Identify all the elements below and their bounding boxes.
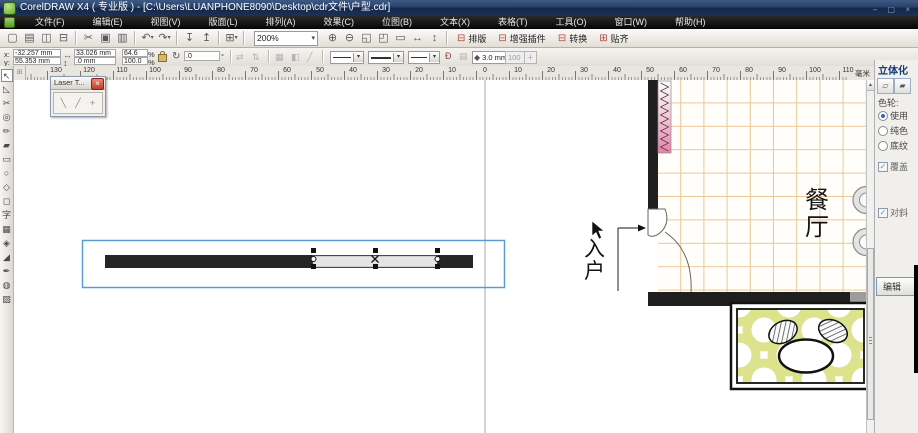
ruler-label: 40	[349, 67, 357, 74]
spinner-value: 100	[506, 53, 523, 62]
toolbox: ↖ ◺ ✂ ◎ ✏ ▰ ▭ ○ ◇ ◻ 字 ▦	[0, 66, 14, 433]
scale-v-field[interactable]	[122, 57, 148, 65]
outline-list-icon[interactable]: ▤	[459, 51, 468, 62]
zoom-selected-icon[interactable]: ◱	[359, 31, 374, 46]
scrollbar-grip	[869, 337, 872, 344]
radio-icon	[878, 111, 888, 121]
export-icon[interactable]: ↥	[199, 31, 214, 46]
coreldraw-app-icon	[3, 2, 16, 15]
combine-icon[interactable]: ▦	[275, 52, 284, 63]
import-icon[interactable]: ↧	[182, 31, 197, 46]
ruler-label: 50	[316, 67, 324, 74]
laser-window-titlebar[interactable]: Laser T... ×	[51, 77, 105, 90]
text-tool-icon[interactable]: 字	[1, 209, 13, 222]
dining-label: 餐厅	[805, 188, 832, 242]
plugin-button[interactable]: ⊟ 增强插件	[498, 31, 545, 46]
cut-icon[interactable]: ✂	[81, 31, 96, 46]
outline-pen-tool-icon[interactable]: ✒	[1, 265, 13, 278]
line-style-combo[interactable]: ▾	[368, 51, 404, 64]
menu-item[interactable]: 表格(T)	[484, 16, 542, 29]
scroll-up-icon[interactable]: ▲	[867, 80, 874, 91]
menu-item[interactable]: 文件(F)	[21, 16, 79, 29]
plugin-icon: ⊟	[457, 33, 465, 44]
object-height-field[interactable]	[74, 57, 116, 65]
plugin-button[interactable]: ⊞ 贴齐	[599, 31, 628, 46]
menu-item[interactable]: 工具(O)	[542, 16, 601, 29]
undo-icon[interactable]: ↶	[140, 31, 155, 46]
toolbar-icon[interactable]	[176, 31, 178, 45]
plus-icon: ＋	[524, 52, 537, 63]
toolbar-icon[interactable]	[134, 31, 136, 45]
start-arrowhead-combo[interactable]: ▾	[330, 51, 364, 64]
zoom-all-icon[interactable]: ◰	[376, 31, 391, 46]
chevron-down-icon: ▾	[393, 53, 403, 62]
copy-icon[interactable]: ▣	[98, 31, 113, 46]
ruler-label: 50	[646, 67, 654, 74]
coreldraw-window: CorelDRAW X4 ( 专业版 ) - [C:\Users\LUANPHO…	[0, 0, 918, 433]
menu-item[interactable]: 效果(C)	[310, 16, 369, 29]
zoom-width-icon[interactable]: ↔	[410, 31, 425, 46]
lock-ratio-icon[interactable]	[158, 54, 167, 62]
ellipse-tool-icon[interactable]: ○	[1, 167, 13, 180]
menu-item[interactable]: 位图(B)	[368, 16, 426, 29]
group-icon[interactable]: ◧	[291, 52, 300, 63]
ruler-label: 110	[842, 67, 853, 74]
laser-window-body: ╲╱+	[53, 92, 103, 114]
print-icon[interactable]: ⊟	[56, 31, 71, 46]
docker-radio[interactable]: 使用	[878, 109, 908, 122]
zoom-in-icon[interactable]: ⊕	[325, 31, 340, 46]
docker-title: 立体化	[878, 62, 908, 77]
color-wheel-label: 色轮:	[878, 96, 899, 109]
shape-tool-icon[interactable]: ◺	[1, 83, 13, 96]
eyedropper-tool-icon[interactable]: ◢	[1, 251, 13, 264]
open-icon[interactable]: ▤	[22, 31, 37, 46]
zoom-level-value: 200%	[257, 33, 279, 43]
wall-left-upper	[648, 80, 658, 210]
interactive-blend-tool-icon[interactable]: ◈	[1, 237, 13, 250]
convert-line-icon[interactable]: ╱	[307, 52, 312, 63]
table-ellipse	[779, 340, 833, 373]
zoom-tool-icon[interactable]: ◎	[1, 111, 13, 124]
window-title: CorelDRAW X4 ( 专业版 ) - [C:\Users\LUANPHO…	[20, 0, 390, 16]
docker-checkbox[interactable]: ✓ 覆盖	[878, 160, 908, 173]
rotation-angle-field[interactable]	[184, 51, 220, 61]
ruler-label: 100	[809, 67, 821, 74]
ruler-origin[interactable]: ⊞	[14, 66, 26, 80]
radio-icon	[878, 141, 888, 151]
menu-item[interactable]: 编辑(E)	[79, 16, 137, 29]
entry-arrow	[618, 225, 646, 292]
ruler-label: 70	[250, 67, 258, 74]
ruler-label: 110	[116, 67, 127, 74]
toolbar-icon[interactable]	[218, 31, 220, 45]
docker-radio[interactable]: 纯色	[878, 124, 908, 137]
ruler-unit-label: 毫米	[855, 68, 870, 79]
tile-floor	[658, 80, 866, 292]
menu-item[interactable]: 视图(V)	[137, 16, 195, 29]
document-icon	[4, 17, 15, 28]
fill-tool-icon[interactable]: ◍	[1, 279, 13, 292]
scrollbar-thumb[interactable]	[867, 248, 874, 420]
new-icon[interactable]: ▢	[5, 31, 20, 46]
table-tool-icon[interactable]: ▦	[1, 223, 13, 236]
extrude-docker: 立体化 ▱ ▰ 色轮: 使用 纯色 底纹 ✓ 覆盖 ✓ 对斜 编辑	[874, 60, 918, 433]
menu-item[interactable]: 窗口(W)	[601, 16, 662, 29]
zoom-level-combo[interactable]: 200% ▾	[254, 31, 318, 46]
plugin-icon: ⊞	[599, 33, 607, 44]
property-bar: x: y: ↔ ↕ % % ↻ ° ⇄ ⇅ ▦ ◧ ╱ ▾ ▾ ▾ Ð	[0, 48, 918, 67]
ruler-ticks	[14, 68, 848, 80]
menu-item[interactable]: 版面(L)	[195, 16, 252, 29]
rectangle-tool-icon[interactable]: ▭	[1, 153, 13, 166]
zoom-height-icon[interactable]: ↕	[427, 31, 442, 46]
ruler-label: 40	[613, 67, 621, 74]
docker-checkbox[interactable]: ✓ 对斜	[878, 206, 908, 219]
polygon-tool-icon[interactable]: ◇	[1, 181, 13, 194]
chevron-down-icon: ▾	[308, 34, 315, 42]
vertical-scrollbar[interactable]: ▲	[866, 80, 874, 433]
ruler-label: 30	[382, 67, 390, 74]
ruler-label: 120	[83, 67, 95, 74]
basic-shapes-tool-icon[interactable]: ◻	[1, 195, 13, 208]
x-position-field[interactable]	[13, 49, 61, 57]
interactive-fill-tool-icon[interactable]: ▨	[1, 293, 13, 306]
freehand-tool-icon[interactable]: ✏	[1, 125, 13, 138]
rotation-icon: ↻	[172, 51, 180, 62]
ruler-label: 10	[448, 67, 456, 74]
title-bar: CorelDRAW X4 ( 专业版 ) - [C:\Users\LUANPHO…	[0, 0, 918, 16]
black-edge-strip	[914, 265, 918, 373]
checkbox-icon: ✓	[878, 162, 888, 172]
crop-tool-icon[interactable]: ✂	[1, 97, 13, 110]
horizontal-ruler[interactable]: 1301201101009080706050403020100102030405…	[14, 66, 874, 81]
floor-plan-drawing	[14, 80, 866, 433]
y-position-field[interactable]	[13, 57, 61, 65]
radiator-symbol	[658, 81, 671, 153]
chevron-down-icon: ▾	[429, 53, 439, 62]
close-icon[interactable]: ×	[91, 78, 104, 90]
extrude-color-button[interactable]: ▰	[894, 78, 911, 94]
docker-radio[interactable]: 底纹	[878, 139, 908, 152]
chevron-down-icon: ▾	[353, 53, 363, 62]
ruler-label: 20	[547, 67, 555, 74]
menu-item[interactable]: 排列(A)	[252, 16, 310, 29]
toolbar-separator	[446, 31, 448, 45]
degree-sign: °	[221, 52, 224, 61]
toolbar-icon[interactable]	[243, 31, 245, 45]
ruler-label: 90	[184, 67, 192, 74]
scale-h-field[interactable]	[122, 49, 148, 57]
balcony-room	[731, 303, 866, 389]
save-icon[interactable]: ◫	[39, 31, 54, 46]
plugin-button[interactable]: ⊟ 转换	[558, 31, 587, 46]
standard-toolbar: ▢▤◫⊟✂▣▥↶↷↧↥⊞ 200% ▾ ⊕⊖◱◰▭↔↕ ⊟ 排版 ⊟ 增强插件 …	[0, 29, 918, 48]
plugin-button[interactable]: ⊟ 排版	[457, 31, 486, 46]
menu-item[interactable]: 帮助(H)	[661, 16, 720, 29]
mirror-vertical-icon[interactable]: ⇅	[252, 52, 260, 63]
mirror-horizontal-icon[interactable]: ⇄	[236, 52, 244, 63]
end-arrowhead-combo[interactable]: ▾	[408, 51, 440, 64]
menu-bar: 文件(F)编辑(E)视图(V)版面(L)排列(A)效果(C)位图(B)文本(X)…	[0, 16, 918, 29]
laser-tool-window[interactable]: Laser T... × ╲╱+	[50, 76, 106, 117]
ruler-label: 80	[217, 67, 225, 74]
pick-tool-icon[interactable]: ↖	[1, 69, 13, 82]
pen-nib-icon: ◆	[473, 53, 480, 62]
ruler-label: 100	[149, 67, 161, 74]
outline-dialog-icon[interactable]: Ð	[445, 51, 452, 61]
laser-wrench-icon[interactable]: +	[86, 95, 99, 111]
transparency-spinner[interactable]: 100 ＋	[505, 51, 537, 64]
app-launcher-icon[interactable]: ⊞	[224, 31, 239, 46]
ruler-label: 60	[283, 67, 291, 74]
zoom-out-icon[interactable]: ⊖	[342, 31, 357, 46]
ruler-label: 30	[580, 67, 588, 74]
ruler-label: 80	[745, 67, 753, 74]
redo-icon[interactable]: ↷	[157, 31, 172, 46]
zoom-page-icon[interactable]: ▭	[393, 31, 408, 46]
toolbar-icon[interactable]	[75, 31, 77, 45]
ruler-label: 20	[415, 67, 423, 74]
laser-window-title: Laser T...	[54, 78, 85, 87]
plugin-icon: ⊟	[558, 33, 566, 44]
smart-fill-tool-icon[interactable]: ▰	[1, 139, 13, 152]
radio-icon	[878, 126, 888, 136]
menu-item[interactable]: 文本(X)	[426, 16, 484, 29]
plugin-icon: ⊟	[498, 33, 506, 44]
ruler-label: 10	[514, 67, 522, 74]
laser-path-1-icon[interactable]: ╲	[57, 95, 70, 111]
ruler-label: 70	[712, 67, 720, 74]
ruler-label: 130	[50, 67, 62, 74]
drawing-canvas[interactable]: 入户 餐厅	[14, 80, 866, 433]
laser-path-2-icon[interactable]: ╱	[72, 95, 85, 111]
object-width-field[interactable]	[74, 49, 116, 57]
extrude-mode-button[interactable]: ▱	[877, 78, 894, 94]
ruler-label: 60	[679, 67, 687, 74]
checkbox-icon: ✓	[878, 208, 888, 218]
ruler-label: 90	[778, 67, 786, 74]
edit-button[interactable]: 编辑	[876, 277, 918, 296]
entry-label: 入户	[584, 238, 609, 282]
paste-icon[interactable]: ▥	[115, 31, 130, 46]
ruler-label: 0	[483, 67, 487, 74]
